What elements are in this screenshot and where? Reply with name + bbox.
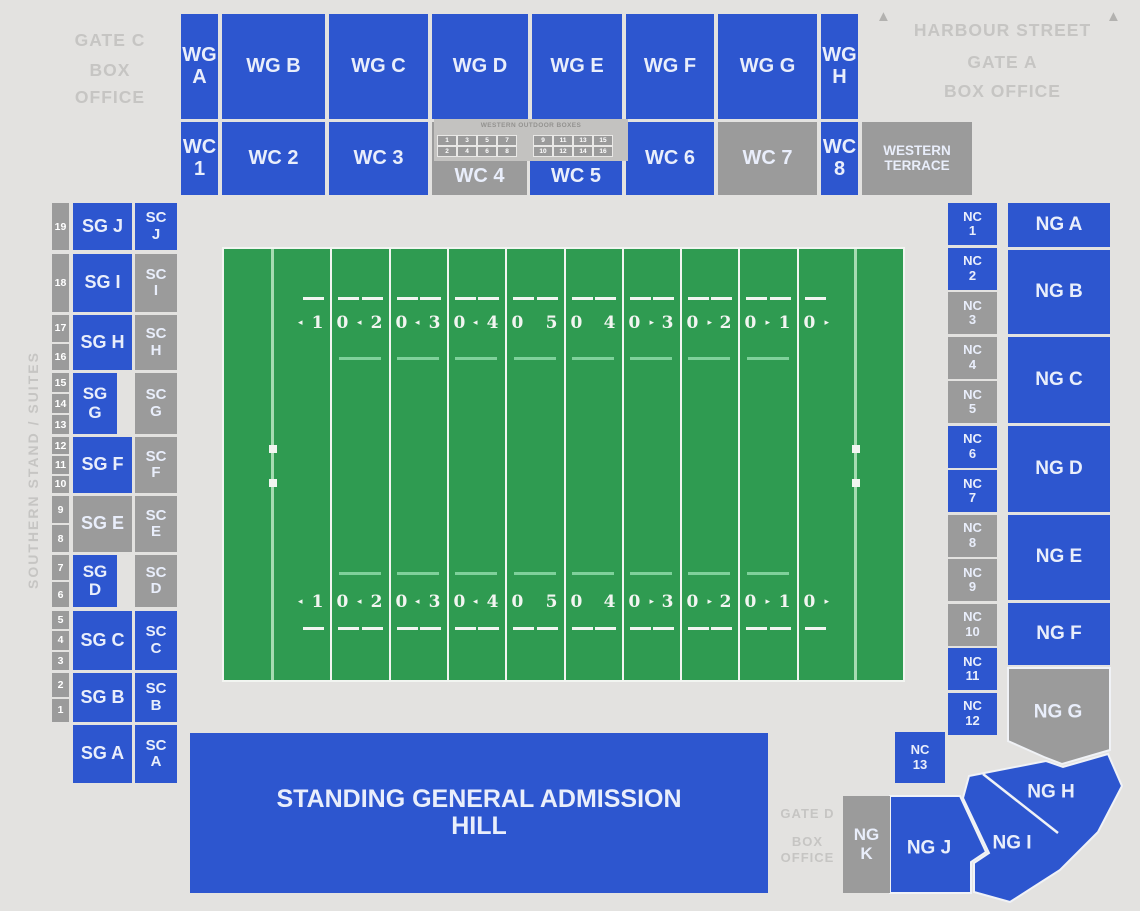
hash-mark: [653, 297, 674, 300]
outdoor-box-cell[interactable]: 14: [573, 146, 593, 157]
section-nc-11[interactable]: NC 11: [948, 648, 997, 690]
section-sg-d[interactable]: SG D: [73, 555, 117, 607]
playing-field: ◂10◂10◂20◂20◂30◂30◂40◂405050▸40▸40▸30▸30…: [222, 247, 905, 682]
section-sc-d: SC D: [135, 555, 177, 607]
yard-number-text: 40: [474, 313, 537, 333]
hash-mark: [805, 627, 826, 630]
field-dash: [630, 572, 672, 575]
outdoor-box-cell[interactable]: 6: [477, 146, 497, 157]
row-number-cell: 4: [52, 631, 69, 649]
section-wg-h[interactable]: WG H: [821, 14, 858, 119]
goal-line: [854, 249, 857, 680]
field-dash: [455, 572, 497, 575]
hash-mark: [711, 297, 732, 300]
section-sg-j[interactable]: SG J: [73, 203, 132, 250]
outdoor-box-cell[interactable]: 16: [593, 146, 613, 157]
section-wc-6[interactable]: WC 6: [626, 122, 714, 195]
hash-mark: [397, 297, 418, 300]
section-sc-g: SC G: [135, 373, 177, 434]
row-numbers-e: 98: [52, 496, 69, 552]
goal-post-mark: [852, 479, 860, 487]
section-nc-3: NC 3: [948, 292, 997, 334]
hash-mark: [303, 627, 324, 630]
hash-mark: [630, 297, 651, 300]
row-number-cell: 5: [52, 611, 69, 629]
section-wc-3[interactable]: WC 3: [329, 122, 428, 195]
gate-c-label: GATE C BOX OFFICE: [52, 30, 168, 108]
section-nc-1[interactable]: NC 1: [948, 203, 997, 245]
row-number-cell: 19: [52, 203, 69, 250]
goal-line: [271, 249, 274, 680]
goal-post-mark: [269, 445, 277, 453]
outdoor-box-cell[interactable]: 4: [457, 146, 477, 157]
yard-number-text: 10: [299, 592, 362, 612]
section-wc-8[interactable]: WC 8: [821, 122, 858, 195]
gate-c-line1: GATE C: [52, 30, 168, 51]
section-ng-i[interactable]: NG I: [992, 833, 1031, 854]
field-dash: [572, 357, 614, 360]
field-dash: [688, 357, 730, 360]
section-standing-hill[interactable]: STANDING GENERAL ADMISSION HILL: [190, 733, 768, 893]
arrow-up-left-icon: ▲: [876, 8, 892, 25]
section-sg-f[interactable]: SG F: [73, 437, 132, 493]
hash-mark: [688, 627, 709, 630]
section-wg-c[interactable]: WG C: [329, 14, 428, 119]
section-wg-g[interactable]: WG G: [718, 14, 817, 119]
hash-mark: [572, 627, 593, 630]
hash-mark: [455, 297, 476, 300]
section-wg-a[interactable]: WG A: [181, 14, 218, 119]
section-nc-9: NC 9: [948, 559, 997, 601]
row-numbers-c: 543: [52, 611, 69, 670]
outdoor-box-cell[interactable]: 8: [497, 146, 517, 157]
section-nc-12[interactable]: NC 12: [948, 693, 997, 735]
section-nc-8: NC 8: [948, 515, 997, 557]
row-number-cell: 8: [52, 525, 69, 552]
hash-mark: [420, 627, 441, 630]
row-number-cell: 14: [52, 394, 69, 413]
gate-a-label: GATE A: [905, 52, 1100, 73]
section-sg-a[interactable]: SG A: [73, 725, 132, 783]
section-nc-2[interactable]: NC 2: [948, 248, 997, 290]
row-number-cell: 6: [52, 582, 69, 607]
harbour-street-label: HARBOUR STREET: [905, 20, 1100, 41]
section-sc-j[interactable]: SC J: [135, 203, 177, 250]
row-numbers-d: 76: [52, 555, 69, 607]
yard-arrow-left-icon: ◂: [298, 597, 303, 607]
field-dash: [339, 572, 381, 575]
outdoor-box-cell[interactable]: 15: [593, 135, 613, 146]
western-outdoor-boxes-title: WESTERN OUTDOOR BOXES: [434, 122, 628, 129]
hash-mark: [746, 297, 767, 300]
yard-number-text: 40: [474, 592, 537, 612]
section-nc-10: NC 10: [948, 604, 997, 646]
section-wc-7: WC 7: [718, 122, 817, 195]
section-nc-7[interactable]: NC 7: [948, 470, 997, 512]
gate-d-line3: OFFICE: [765, 850, 850, 865]
hash-mark: [362, 627, 383, 630]
section-nc-5: NC 5: [948, 381, 997, 423]
hash-mark: [688, 297, 709, 300]
field-dash: [572, 572, 614, 575]
field-dash: [339, 357, 381, 360]
section-sg-g[interactable]: SG G: [73, 373, 117, 434]
section-ng-d[interactable]: NG D: [1008, 426, 1110, 512]
outdoor-box-cell[interactable]: 2: [437, 146, 457, 157]
outdoor-box-group-left: 13572468: [437, 135, 517, 157]
outdoor-box-cell[interactable]: 3: [457, 135, 477, 146]
row-number-cell: 2: [52, 673, 69, 697]
hash-mark: [303, 297, 324, 300]
section-sc-i: SC I: [135, 254, 177, 312]
yard-arrow-right-icon: ▸: [824, 318, 829, 328]
yard-arrow-left-icon: ◂: [298, 318, 303, 328]
hash-mark: [770, 297, 791, 300]
section-sc-h: SC H: [135, 315, 177, 370]
section-wg-d[interactable]: WG D: [432, 14, 528, 119]
section-sc-a[interactable]: SC A: [135, 725, 177, 783]
hash-mark: [595, 627, 616, 630]
hash-mark: [630, 627, 651, 630]
section-sc-b[interactable]: SC B: [135, 673, 177, 722]
section-ng-b[interactable]: NG B: [1008, 250, 1110, 334]
section-ng-j[interactable]: NG J: [907, 838, 951, 859]
row-numbers-j: 19: [52, 203, 69, 250]
row-number-cell: 11: [52, 456, 69, 473]
row-numbers-i: 18: [52, 254, 69, 312]
section-sg-e: SG E: [73, 496, 132, 552]
outdoor-box-cell[interactable]: 7: [497, 135, 517, 146]
gate-c-line3: OFFICE: [52, 87, 168, 108]
row-number-cell: 7: [52, 555, 69, 580]
outdoor-box-cell[interactable]: 10: [533, 146, 553, 157]
section-wg-f[interactable]: WG F: [626, 14, 714, 119]
row-numbers-f: 121110: [52, 437, 69, 493]
field-dash: [514, 572, 556, 575]
section-ng-c[interactable]: NG C: [1008, 337, 1110, 423]
section-sg-c[interactable]: SG C: [73, 611, 132, 670]
row-number-cell: 1: [52, 699, 69, 723]
hash-mark: [572, 297, 593, 300]
section-wg-b[interactable]: WG B: [222, 14, 325, 119]
section-sg-i[interactable]: SG I: [73, 254, 132, 312]
row-number-cell: 10: [52, 476, 69, 493]
field-dash: [514, 357, 556, 360]
goal-post-mark: [269, 479, 277, 487]
hash-mark: [513, 297, 534, 300]
yard-number-text: 20: [707, 313, 770, 333]
box-office-a-label: BOX OFFICE: [905, 81, 1100, 102]
section-wc-1[interactable]: WC 1: [181, 122, 218, 195]
section-ng-e[interactable]: NG E: [1008, 515, 1110, 600]
section-sg-b[interactable]: SG B: [73, 673, 132, 722]
yard-number: ▸10: [761, 591, 833, 613]
row-number-cell: 16: [52, 344, 69, 371]
hash-mark: [362, 297, 383, 300]
section-nc-4: NC 4: [948, 337, 997, 379]
field-dash: [630, 357, 672, 360]
hash-mark: [455, 627, 476, 630]
hash-mark: [653, 627, 674, 630]
section-nc-6[interactable]: NC 6: [948, 426, 997, 468]
outdoor-box-group-right: 911131510121416: [533, 135, 613, 157]
hash-mark: [770, 627, 791, 630]
stadium-seat-map: GATE C BOX OFFICE ▲ ▲ HARBOUR STREET GAT…: [0, 0, 1140, 911]
section-wc-2[interactable]: WC 2: [222, 122, 325, 195]
field-dash: [397, 572, 439, 575]
hash-mark: [478, 627, 499, 630]
yard-arrow-left-icon: ◂: [473, 318, 478, 328]
yard-number-text: 10: [766, 592, 829, 612]
hash-mark: [711, 627, 732, 630]
outdoor-box-cell[interactable]: 1: [437, 135, 457, 146]
section-sc-c[interactable]: SC C: [135, 611, 177, 670]
hash-mark: [513, 627, 534, 630]
hash-mark: [338, 297, 359, 300]
section-sc-e: SC E: [135, 496, 177, 552]
row-numbers-g: 151413: [52, 373, 69, 434]
section-ng-a[interactable]: NG A: [1008, 203, 1110, 247]
hash-mark: [805, 297, 826, 300]
southern-stand-label: SOUTHERN STAND / SUITES: [25, 351, 41, 589]
section-sc-f: SC F: [135, 437, 177, 493]
yard-arrow-left-icon: ◂: [473, 597, 478, 607]
field-dash: [455, 357, 497, 360]
western-outdoor-boxes: WESTERN OUTDOOR BOXES 13572468 911131510…: [434, 119, 628, 161]
yard-number: ▸10: [761, 312, 833, 334]
yard-number-text: 20: [707, 592, 770, 612]
section-western-terrace: WESTERN TERRACE: [862, 122, 972, 195]
standing-hill-label: STANDING GENERAL ADMISSION HILL: [264, 786, 694, 840]
goal-post-mark: [852, 445, 860, 453]
row-number-cell: 18: [52, 254, 69, 312]
row-numbers-h: 1716: [52, 315, 69, 370]
yard-arrow-left-icon: ◂: [357, 597, 362, 607]
yard-number-text: 10: [299, 313, 362, 333]
row-number-cell: 12: [52, 437, 69, 454]
hash-mark: [746, 627, 767, 630]
yard-arrow-left-icon: ◂: [415, 597, 420, 607]
row-number-cell: 3: [52, 652, 69, 670]
section-wg-e[interactable]: WG E: [532, 14, 622, 119]
row-number-cell: 15: [52, 373, 69, 392]
field-dash: [397, 357, 439, 360]
row-number-cell: 13: [52, 415, 69, 434]
section-ng-g: NG G: [1034, 702, 1083, 723]
outdoor-box-cell[interactable]: 12: [553, 146, 573, 157]
outdoor-box-cell[interactable]: 5: [477, 135, 497, 146]
hash-mark: [537, 297, 558, 300]
section-ng-h[interactable]: NG H: [1027, 782, 1075, 803]
hash-mark: [537, 627, 558, 630]
yard-arrow-left-icon: ◂: [357, 318, 362, 328]
outdoor-box-cell[interactable]: 11: [553, 135, 573, 146]
hash-mark: [338, 627, 359, 630]
outdoor-box-cell[interactable]: 13: [573, 135, 593, 146]
yard-arrow-left-icon: ◂: [415, 318, 420, 328]
yard-number-text: 10: [766, 313, 829, 333]
row-number-cell: 9: [52, 496, 69, 523]
arrow-up-right-icon: ▲: [1106, 8, 1122, 25]
hash-mark: [420, 297, 441, 300]
gate-c-line2: BOX: [52, 60, 168, 81]
gate-d-line2: BOX: [765, 834, 850, 849]
row-number-cell: 17: [52, 315, 69, 342]
field-dash: [747, 357, 789, 360]
field-dash: [747, 572, 789, 575]
section-sg-h[interactable]: SG H: [73, 315, 132, 370]
hash-mark: [397, 627, 418, 630]
section-nc-13[interactable]: NC 13: [895, 732, 945, 783]
outdoor-box-cell[interactable]: 9: [533, 135, 553, 146]
hash-mark: [595, 297, 616, 300]
field-dash: [688, 572, 730, 575]
row-numbers-b: 21: [52, 673, 69, 722]
hash-mark: [478, 297, 499, 300]
gate-d-line1: GATE D: [765, 806, 850, 821]
section-ng-k: NG K: [843, 796, 890, 893]
yard-arrow-right-icon: ▸: [824, 597, 829, 607]
